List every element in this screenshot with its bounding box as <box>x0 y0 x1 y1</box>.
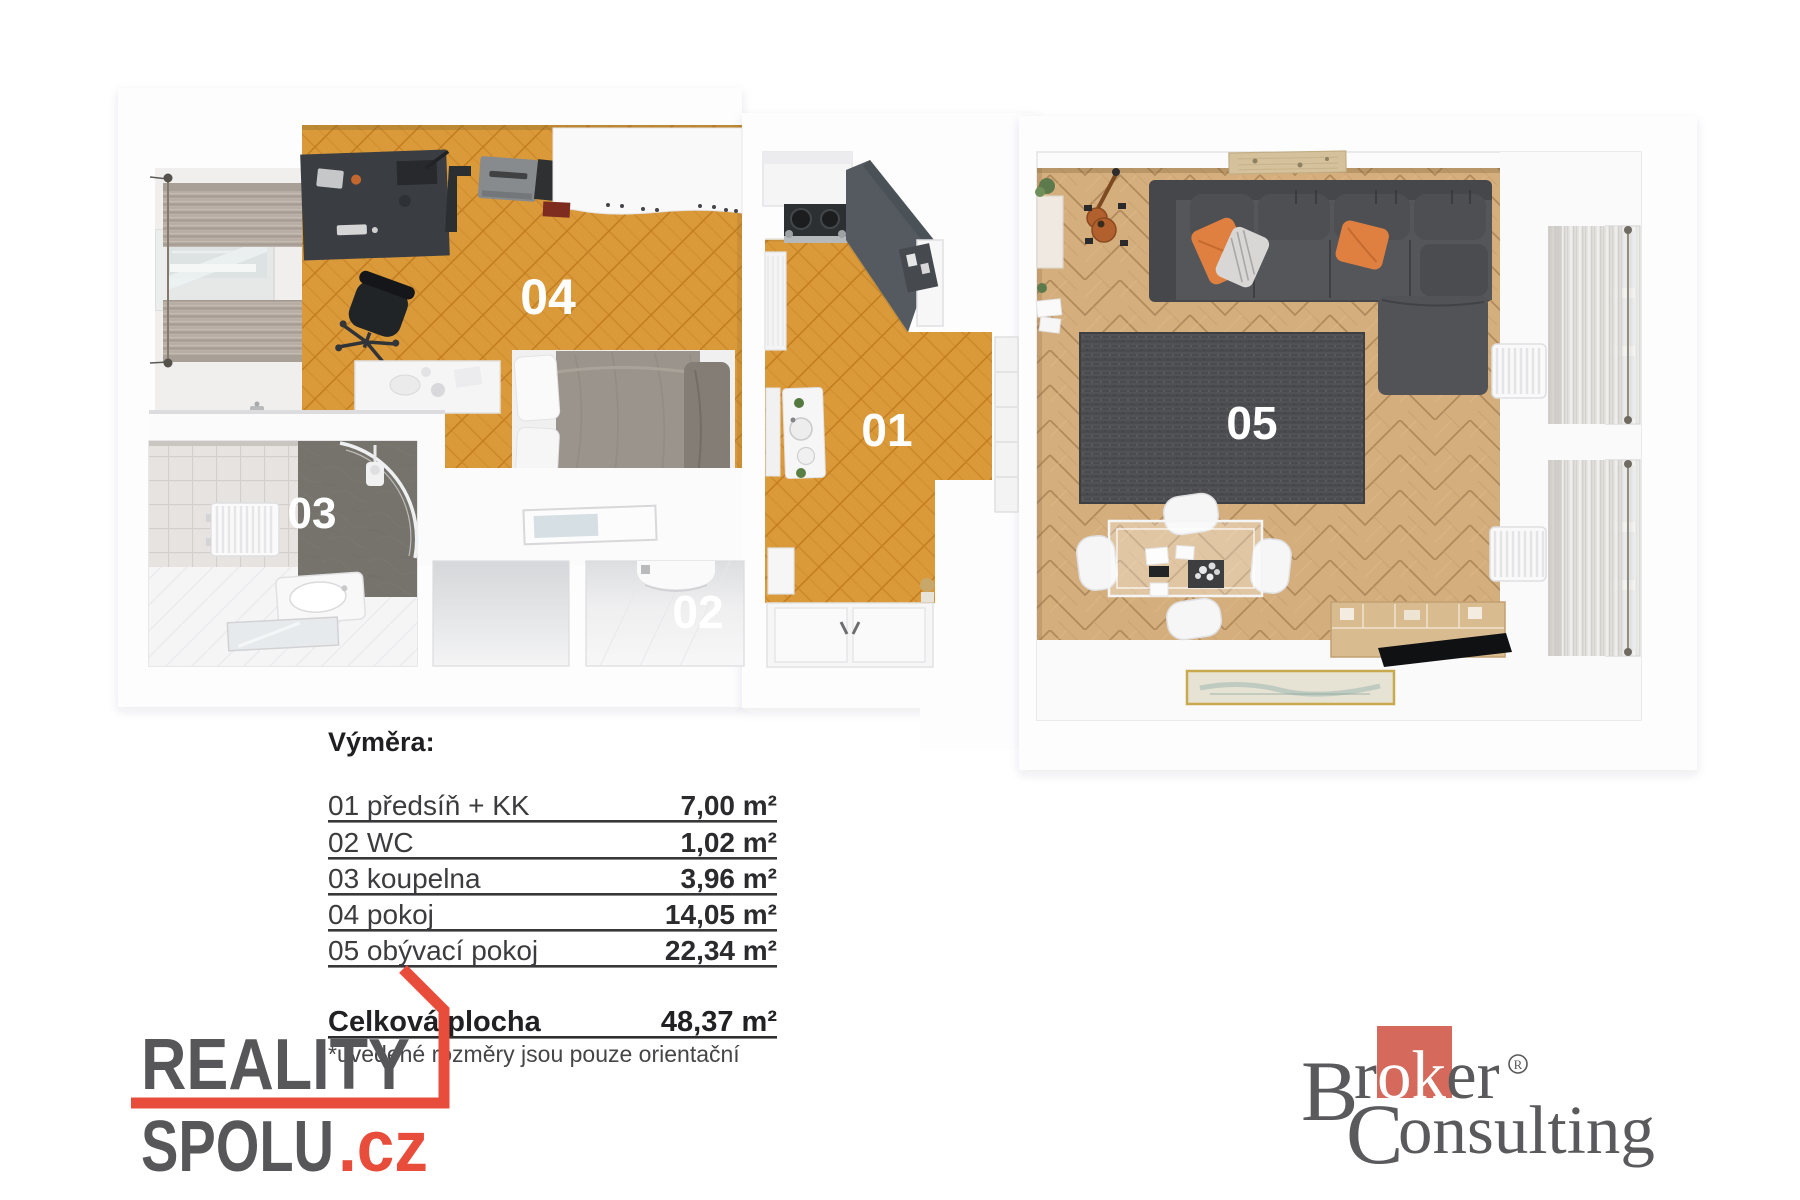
svg-text:SPOLU: SPOLU <box>141 1107 334 1187</box>
svg-text:05: 05 <box>1226 397 1277 449</box>
svg-text:R: R <box>1514 1057 1523 1072</box>
svg-text:3,96 m²: 3,96 m² <box>681 863 778 894</box>
svg-text:REALITY: REALITY <box>141 1025 410 1105</box>
svg-text:05 obývací pokoj: 05 obývací pokoj <box>328 935 538 966</box>
svg-text:04 pokoj: 04 pokoj <box>328 899 434 930</box>
svg-text:1,02 m²: 1,02 m² <box>681 827 778 858</box>
svg-text:Výměra:: Výměra: <box>328 727 435 757</box>
svg-text:03: 03 <box>288 489 337 538</box>
svg-text:48,37 m²: 48,37 m² <box>661 1006 777 1038</box>
svg-text:onsulting: onsulting <box>1398 1092 1655 1168</box>
svg-text:7,00 m²: 7,00 m² <box>681 790 778 821</box>
svg-text:02 WC: 02 WC <box>328 827 414 858</box>
svg-text:04: 04 <box>520 269 576 325</box>
svg-text:01 předsíň + KK: 01 předsíň + KK <box>328 790 530 821</box>
svg-text:14,05 m²: 14,05 m² <box>665 899 777 930</box>
svg-text:.cz: .cz <box>338 1107 428 1187</box>
svg-text:02: 02 <box>672 586 723 638</box>
svg-text:03 koupelna: 03 koupelna <box>328 863 481 894</box>
svg-text:22,34 m²: 22,34 m² <box>665 935 777 966</box>
svg-text:01: 01 <box>861 404 912 456</box>
svg-text:C: C <box>1346 1086 1403 1182</box>
